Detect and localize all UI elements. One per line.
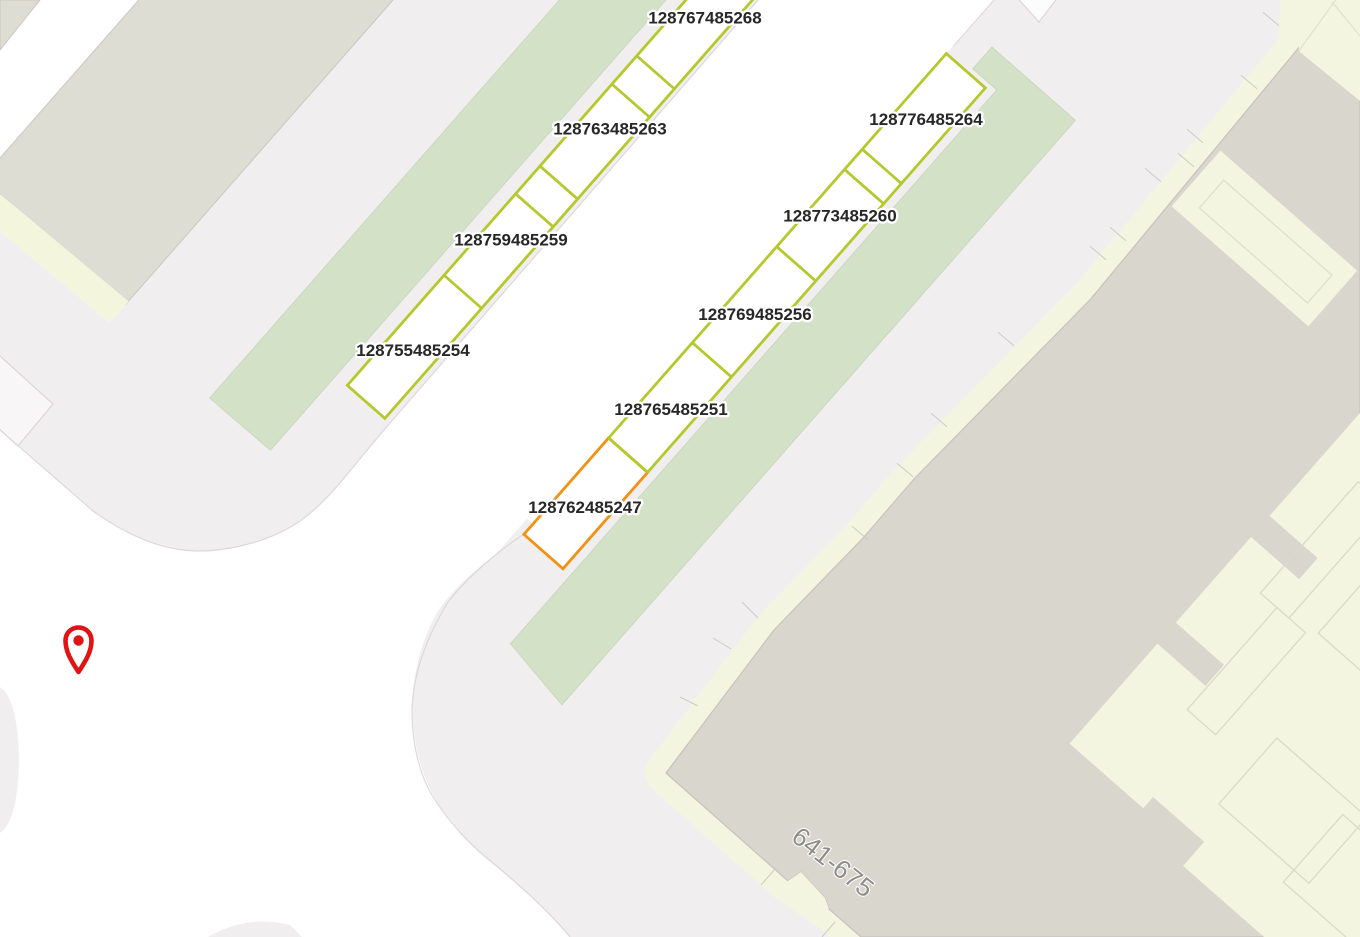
svg-text:128763485263: 128763485263	[553, 120, 666, 139]
svg-text:128765485251: 128765485251	[614, 400, 727, 419]
svg-text:128773485260: 128773485260	[783, 207, 896, 226]
svg-text:128755485254: 128755485254	[356, 341, 470, 360]
svg-text:128759485259: 128759485259	[454, 231, 567, 250]
svg-text:128769485256: 128769485256	[698, 305, 811, 324]
svg-text:128762485247: 128762485247	[528, 498, 641, 517]
svg-text:128776485264: 128776485264	[869, 110, 983, 129]
svg-text:128767485268: 128767485268	[648, 9, 761, 28]
